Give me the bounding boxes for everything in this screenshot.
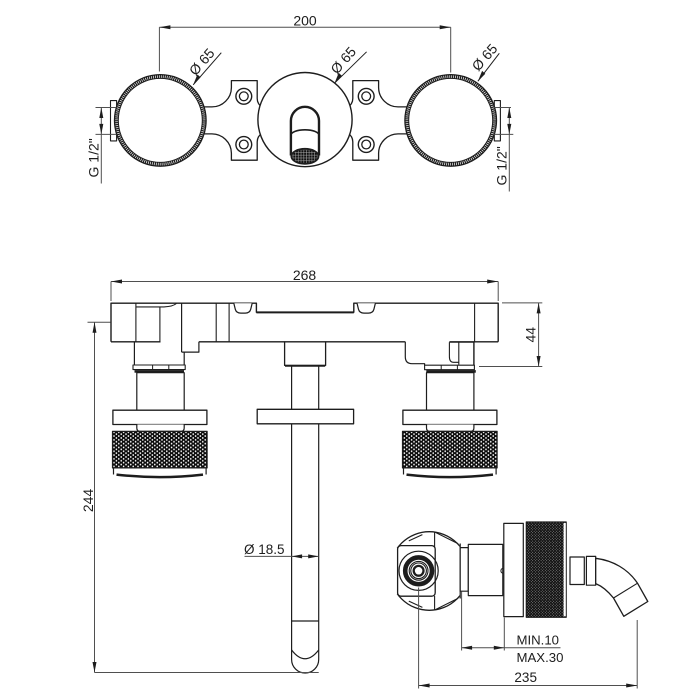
svg-text:MIN.10: MIN.10 xyxy=(517,632,560,647)
svg-text:44: 44 xyxy=(523,327,539,343)
svg-text:235: 235 xyxy=(514,670,537,685)
svg-text:268: 268 xyxy=(293,267,317,283)
svg-text:G 1/2": G 1/2" xyxy=(86,138,102,177)
svg-text:Ø 18.5: Ø 18.5 xyxy=(244,542,285,557)
svg-text:G 1/2": G 1/2" xyxy=(494,146,510,185)
svg-text:MAX.30: MAX.30 xyxy=(517,650,564,665)
svg-text:200: 200 xyxy=(293,13,317,29)
svg-text:244: 244 xyxy=(80,489,96,513)
